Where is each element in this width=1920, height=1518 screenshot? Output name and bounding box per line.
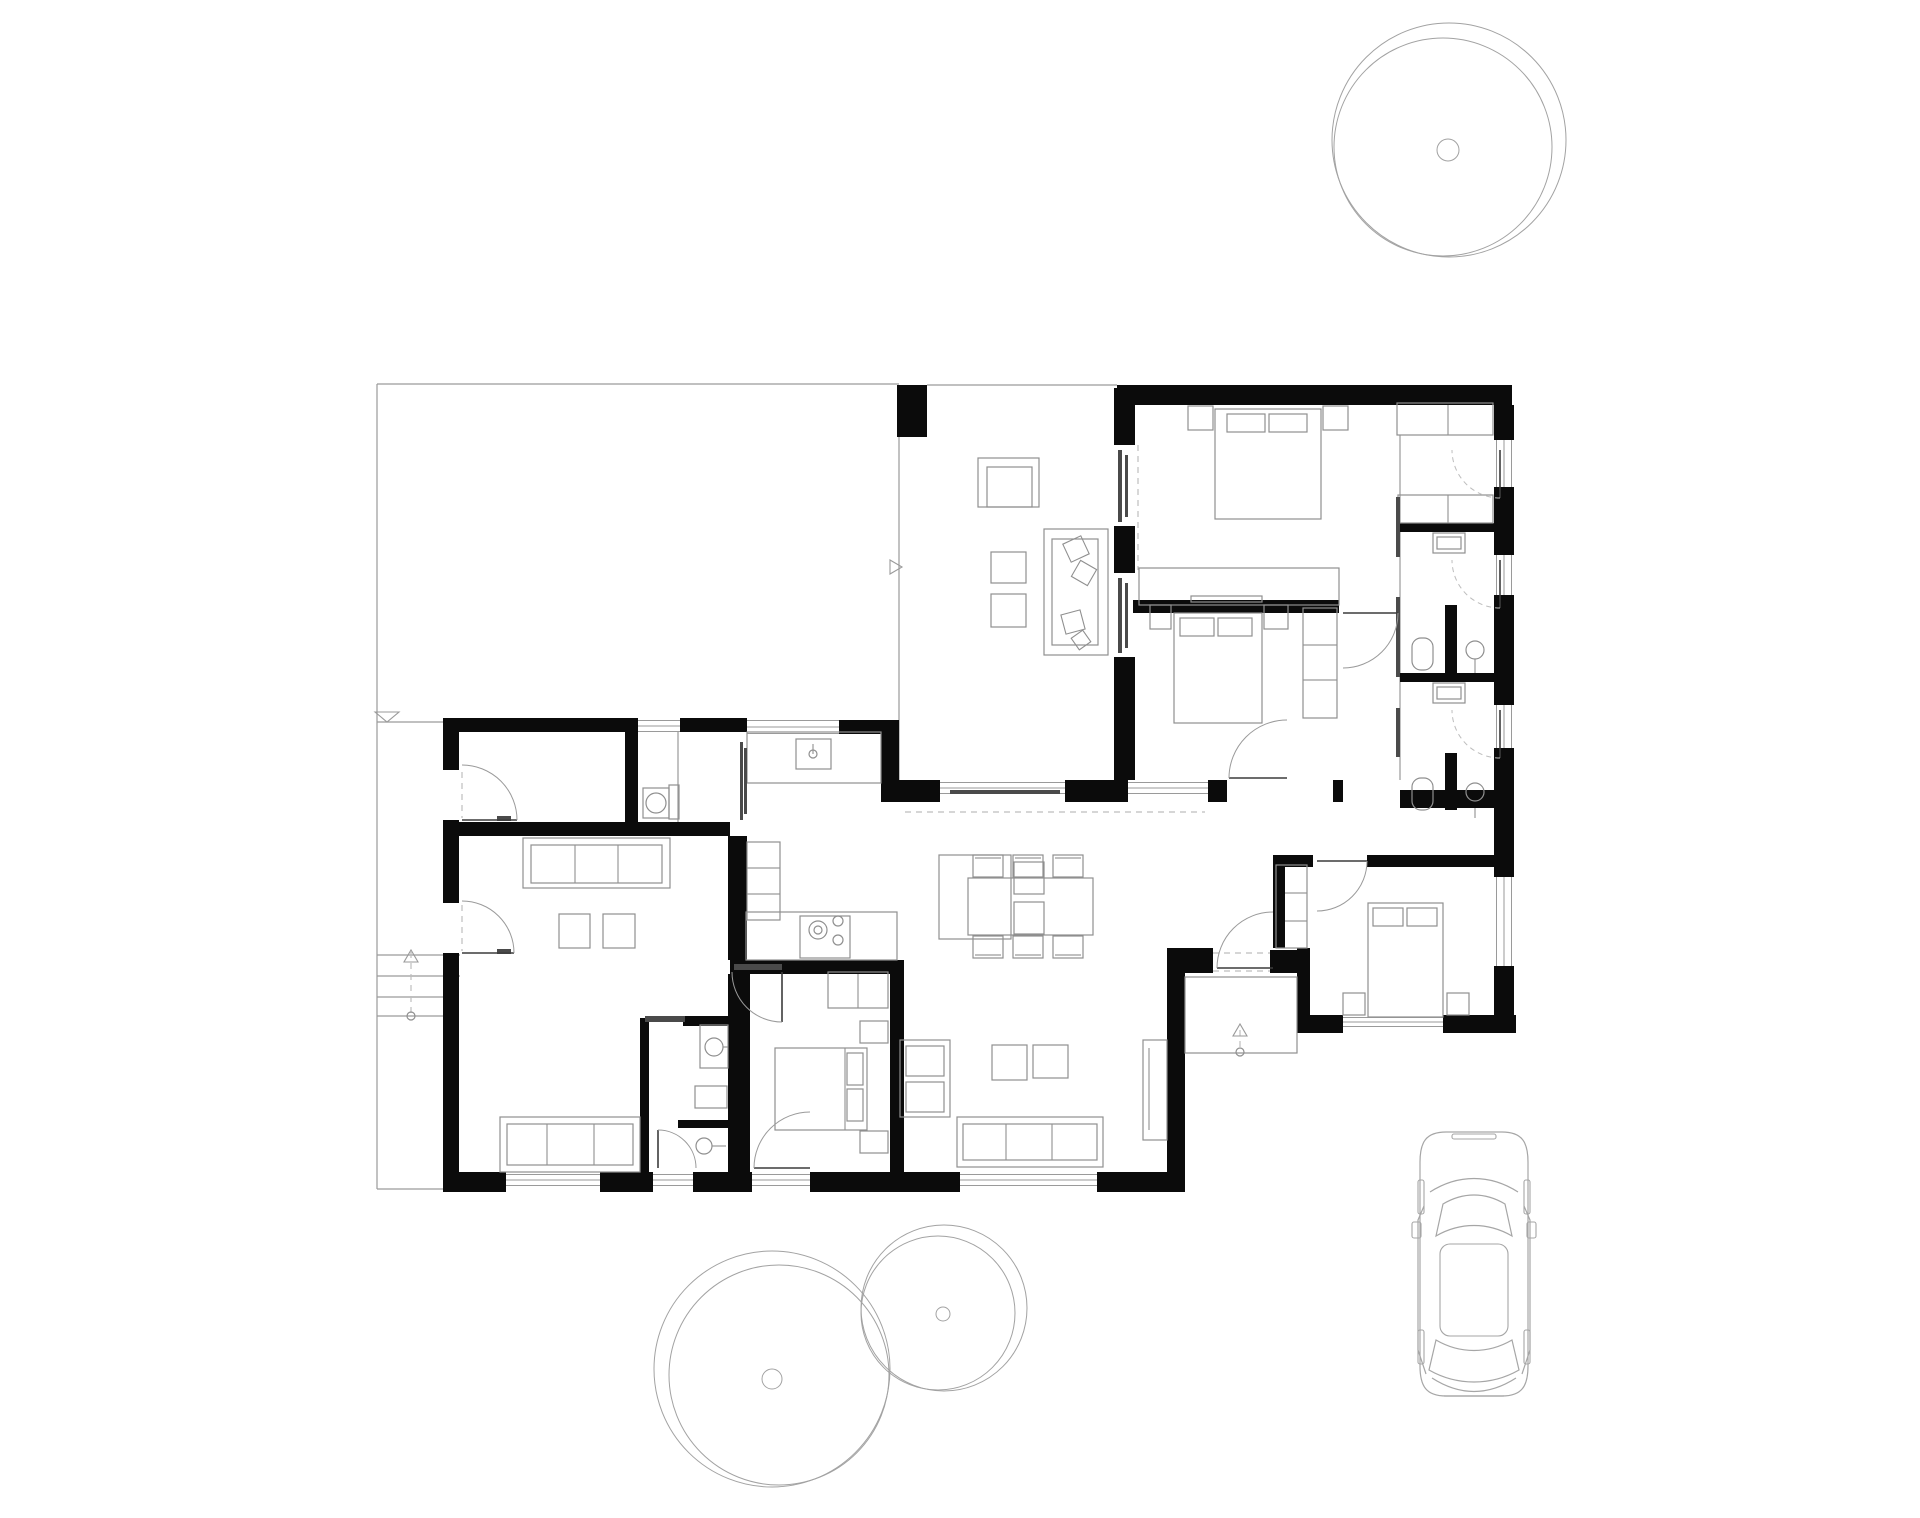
- washer-drum: [646, 793, 666, 813]
- wall-segment-30: [1494, 810, 1514, 877]
- car-line-1: [1430, 1179, 1518, 1193]
- side-table: [559, 914, 590, 948]
- pillow: [847, 1053, 863, 1085]
- sofa-window-seat: [507, 1124, 633, 1165]
- bed-master: [1215, 409, 1321, 519]
- sideboard: [1143, 1040, 1167, 1140]
- car-detail: [1440, 1244, 1508, 1336]
- pouf: [1447, 993, 1469, 1015]
- wall-segment-38: [1494, 405, 1514, 440]
- door-bed2-swing: [1343, 613, 1398, 668]
- slide-bar-2: [1118, 578, 1122, 653]
- lounge-chair-seat: [906, 1046, 944, 1076]
- car-line-3: [1429, 1340, 1519, 1382]
- slide-bar-10: [1396, 708, 1400, 757]
- wall-segment-39: [1494, 487, 1514, 555]
- wall-segment-6: [443, 953, 459, 1172]
- bed-3: [1368, 903, 1443, 1017]
- wardrobe-bed2: [1303, 608, 1337, 718]
- toilet: [695, 1086, 727, 1108]
- vanity-basin: [1437, 687, 1461, 699]
- wall-segment-33: [897, 385, 927, 437]
- bar-stool: [1014, 902, 1044, 934]
- door-hall-suite-swing: [1229, 720, 1287, 778]
- slide-bar-5: [744, 748, 747, 814]
- entry-porch: [1185, 977, 1297, 1053]
- floor-plan-canvas: [0, 0, 1920, 1518]
- shower-head: [1466, 641, 1484, 659]
- lounge-chair-seat: [906, 1082, 944, 1112]
- wall-segment-49: [1445, 605, 1457, 675]
- sofa-pillow: [1071, 560, 1096, 585]
- nightstand: [1323, 406, 1348, 430]
- pillow: [847, 1089, 863, 1121]
- toilet: [1412, 638, 1433, 670]
- media-unit-inner: [987, 467, 1032, 507]
- tree-canopy-outer: [1332, 23, 1566, 257]
- car-line-4: [1432, 1378, 1516, 1392]
- tree-trunk: [936, 1307, 950, 1321]
- car-line-2: [1436, 1195, 1512, 1236]
- door-wic-swing: [1452, 450, 1500, 498]
- wall-segment-8: [625, 732, 638, 822]
- coffee-table: [991, 552, 1026, 583]
- wall-segment-25: [1367, 855, 1495, 867]
- wall-segment-19: [810, 1172, 960, 1192]
- burner: [833, 916, 843, 926]
- nightstand: [860, 1021, 888, 1043]
- sofa-family-seat: [963, 1124, 1097, 1160]
- sofa-lounge-seat: [531, 845, 662, 883]
- tree-northeast: [1332, 23, 1566, 257]
- door-lounge-west-swing: [462, 901, 514, 953]
- door-main-entrance-swing: [1217, 912, 1273, 968]
- wall-segment-18: [693, 1172, 752, 1192]
- trees-layer: [654, 23, 1566, 1487]
- entry-marker: [1236, 1048, 1244, 1056]
- doors-layer: [462, 450, 1500, 1168]
- door-bed4-terrace-swing: [754, 1112, 810, 1168]
- wall-segment-1: [680, 718, 747, 732]
- direction-marker: [890, 560, 902, 574]
- wardrobe-wic: [1398, 495, 1493, 523]
- wall-segment-43: [1065, 780, 1128, 802]
- vanity: [1433, 683, 1465, 703]
- pillow: [1180, 618, 1214, 636]
- wall-segment-42: [881, 780, 940, 802]
- vanity: [1433, 533, 1465, 553]
- slide-bar-0: [1118, 450, 1122, 522]
- wall-segment-23: [1270, 950, 1297, 973]
- nightstand: [1188, 406, 1213, 430]
- wall-segment-50: [1445, 753, 1457, 810]
- slide-bar-7: [734, 964, 782, 970]
- pillow: [1373, 908, 1403, 926]
- wall-segment-34: [1114, 388, 1135, 445]
- wall-segment-31: [1494, 966, 1514, 1033]
- car-detail: [1452, 1134, 1496, 1139]
- car-line-5: [1418, 1206, 1426, 1374]
- wall-segment-15: [678, 1120, 728, 1128]
- wall-segment-13: [640, 1018, 649, 1172]
- door-wc-swing: [658, 1130, 696, 1168]
- wall-segment-12: [890, 974, 904, 1172]
- tree-trunk: [1437, 139, 1459, 161]
- sofa-window: [500, 1117, 640, 1172]
- wall-segment-47: [1400, 523, 1495, 532]
- wall-segment-36: [1114, 657, 1135, 780]
- wall-segment-17: [600, 1172, 653, 1192]
- pouf: [1343, 993, 1365, 1015]
- side-table: [603, 914, 635, 948]
- sofa-pillow: [1071, 630, 1091, 650]
- wall-segment-4: [443, 732, 459, 770]
- car-line-6: [1522, 1206, 1530, 1374]
- pillow: [1269, 414, 1307, 432]
- coffee-table: [991, 594, 1026, 627]
- side-table: [1033, 1045, 1068, 1078]
- burner: [833, 935, 843, 945]
- pillow: [1407, 908, 1437, 926]
- car-layer: [1412, 1132, 1536, 1396]
- shower-head: [696, 1138, 712, 1154]
- kitchen-counter: [746, 912, 897, 960]
- round-basin: [705, 1038, 723, 1056]
- car-top-view: [1412, 1132, 1536, 1396]
- dining-table: [968, 878, 1093, 935]
- vanity-basin: [1437, 537, 1461, 549]
- car-line-0: [1420, 1132, 1528, 1396]
- slide-bar-1: [1125, 455, 1128, 517]
- wall-segment-0: [443, 718, 638, 732]
- tree-trunk: [762, 1369, 782, 1389]
- door-bed3-swing: [1317, 861, 1367, 911]
- tree-canopy-inner: [861, 1236, 1015, 1390]
- site-level-marker: [375, 712, 399, 722]
- wall-segment-16: [443, 1172, 506, 1192]
- wall-segment-44: [1208, 780, 1227, 802]
- door-entry-west-swing: [462, 765, 517, 820]
- wall-segment-45: [1333, 780, 1343, 802]
- slide-bar-13: [950, 790, 1060, 794]
- kitchen-tall-cabinets: [747, 842, 780, 920]
- slide-bar-4: [740, 742, 743, 820]
- tree-canopy-outer: [861, 1225, 1027, 1391]
- door-bath2-swing: [1452, 710, 1500, 758]
- burner: [809, 921, 827, 939]
- floor-plan-sheet: [0, 0, 1920, 1518]
- slide-bar-8: [1396, 497, 1400, 557]
- kitchen-island: [939, 855, 1011, 939]
- door-bath1-swing: [1452, 560, 1500, 608]
- wall-segment-27: [1297, 948, 1310, 1033]
- sofa-pillow: [1063, 536, 1089, 562]
- wall-segment-35: [1114, 526, 1135, 573]
- nightstand: [860, 1131, 888, 1153]
- wall-segment-21: [1167, 948, 1185, 1192]
- tree-south-large: [654, 1251, 890, 1487]
- slide-bar-6: [645, 1016, 685, 1022]
- slide-bar-9: [1396, 597, 1400, 677]
- wall-segment-11: [728, 974, 750, 1172]
- side-table: [992, 1045, 1027, 1080]
- wall-segment-40: [1494, 595, 1514, 705]
- sofa-living-seat: [1052, 539, 1098, 645]
- pillow: [1218, 618, 1252, 636]
- wardrobe-wic: [1397, 403, 1493, 435]
- tree-south-small: [861, 1225, 1027, 1391]
- pillow: [1227, 414, 1265, 432]
- wall-segment-26: [1273, 862, 1285, 948]
- wall-segment-22: [1185, 948, 1213, 973]
- wall-segment-28: [1310, 1015, 1343, 1033]
- wall-segment-7: [443, 822, 730, 836]
- wall-segment-32: [1117, 385, 1512, 405]
- headboard-alcove: [1139, 568, 1339, 605]
- lounge-chair: [900, 1040, 950, 1117]
- burner: [814, 926, 822, 934]
- slide-bar-3: [1125, 583, 1128, 648]
- wall-segment-9: [728, 836, 747, 960]
